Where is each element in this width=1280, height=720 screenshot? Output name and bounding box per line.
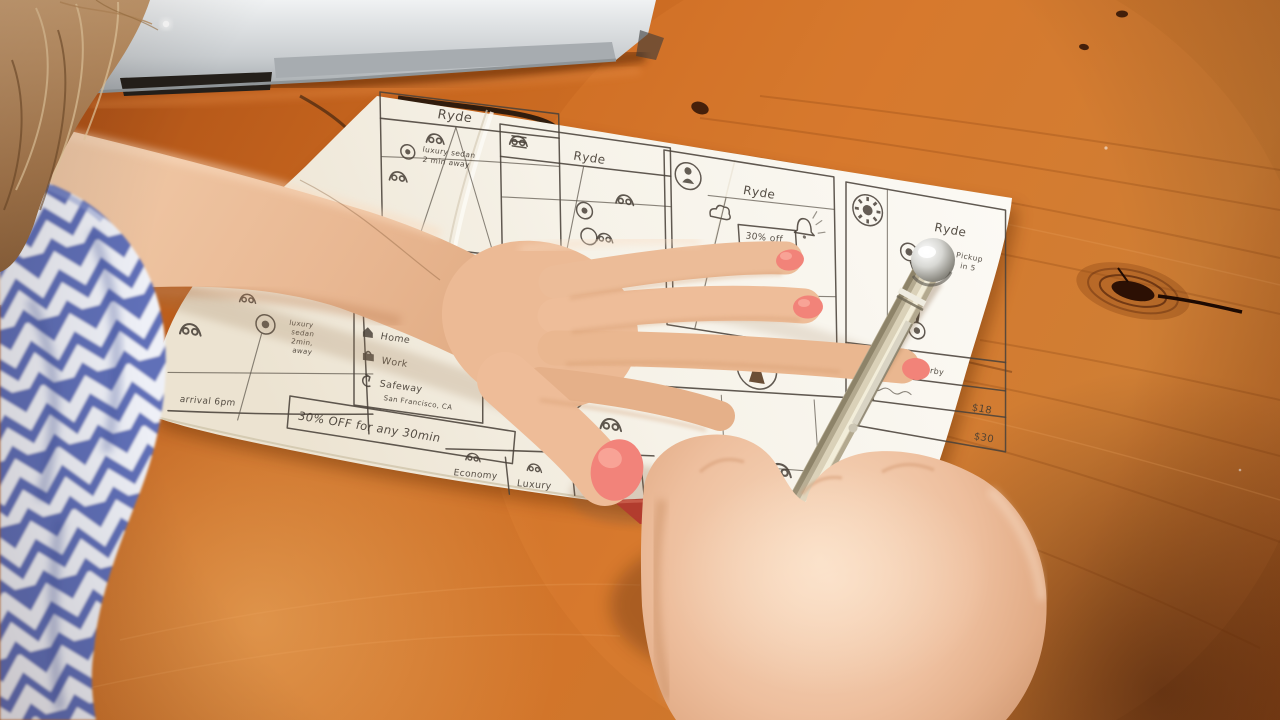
photo-scene: Ryde luxury sedan 2 min away Ryde bbox=[0, 0, 1280, 720]
vignette bbox=[0, 0, 1280, 720]
